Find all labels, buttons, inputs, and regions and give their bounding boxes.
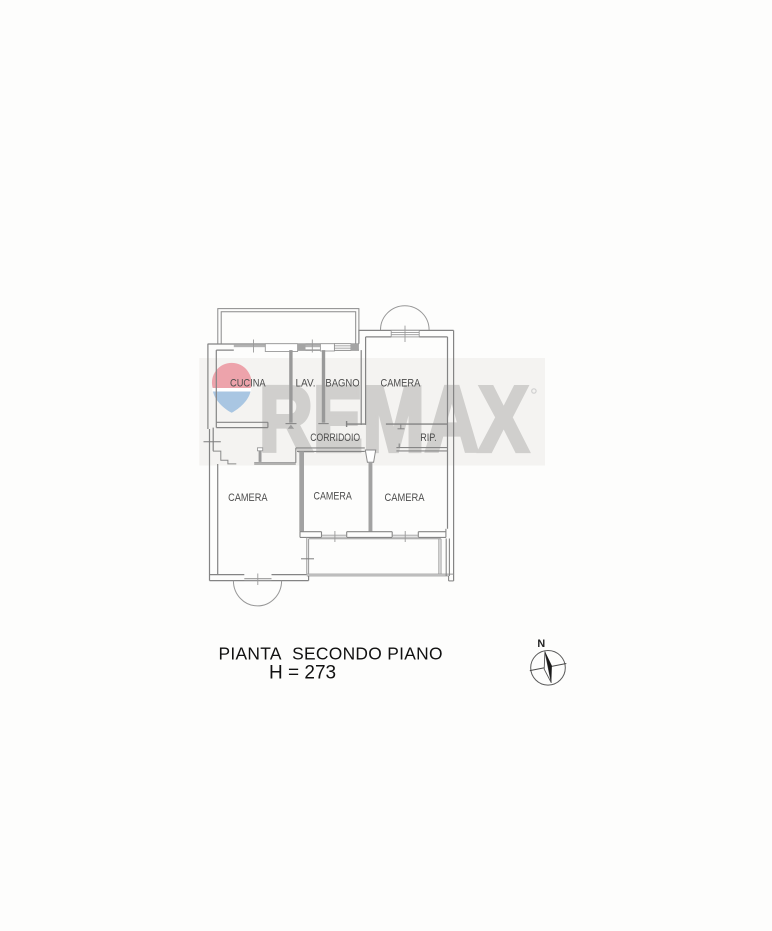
svg-text:LAV.: LAV. [296, 378, 316, 390]
svg-text:BAGNO: BAGNO [325, 378, 359, 390]
svg-text:CORRIDOIO: CORRIDOIO [310, 432, 360, 444]
svg-text:CAMERA: CAMERA [381, 378, 421, 390]
svg-text:N: N [537, 638, 545, 650]
svg-text:PIANTA SECONDO PIANO: PIANTA SECONDO PIANO [219, 644, 443, 664]
svg-text:CAMERA: CAMERA [228, 492, 268, 504]
svg-text:H = 273: H = 273 [269, 663, 336, 684]
svg-text:RIP.: RIP. [420, 432, 437, 444]
svg-text:CUCINA: CUCINA [230, 378, 266, 390]
svg-text:CAMERA: CAMERA [385, 492, 425, 504]
svg-text:CAMERA: CAMERA [314, 491, 353, 503]
